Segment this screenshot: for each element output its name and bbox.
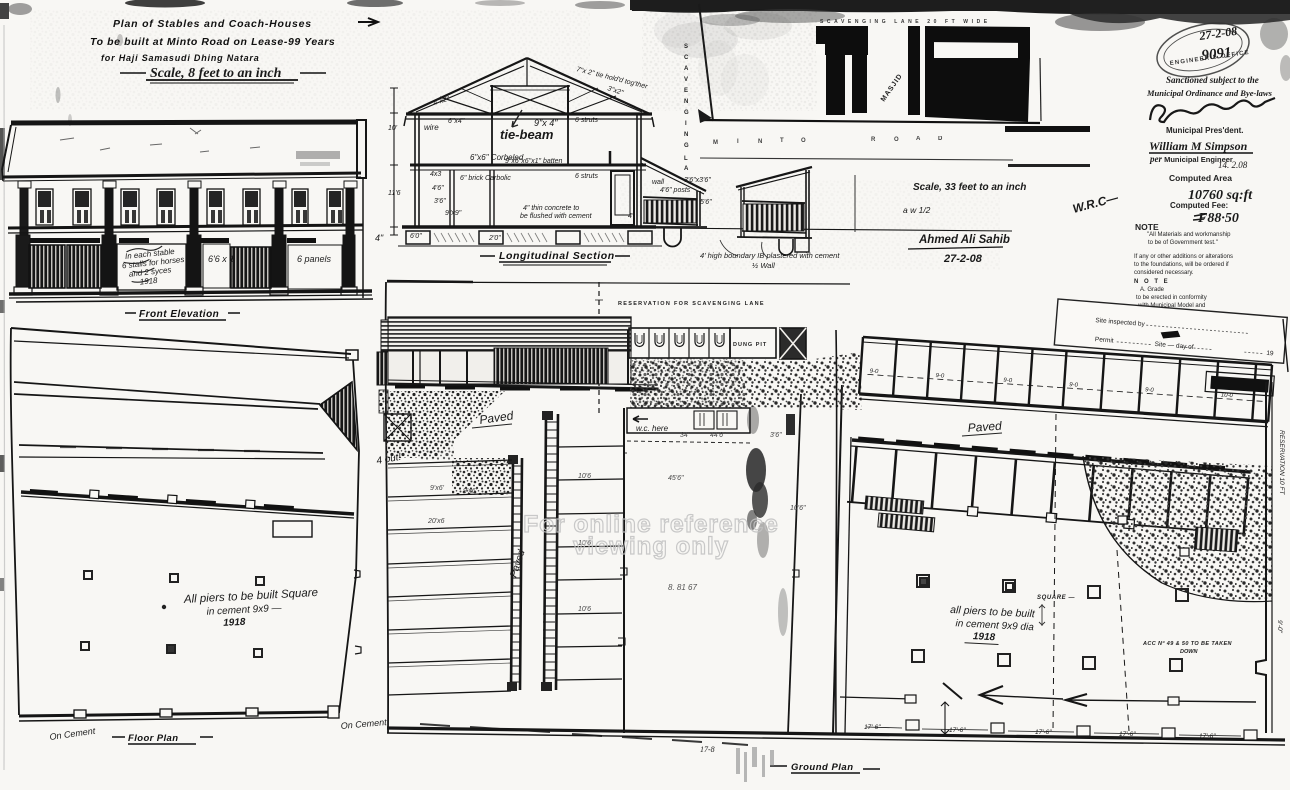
svg-text:3'6": 3'6": [434, 198, 446, 205]
svg-text:D: D: [938, 136, 943, 142]
svg-text:Front Elevation: Front Elevation: [139, 309, 219, 320]
svg-text:Computed Area: Computed Area: [1169, 173, 1232, 183]
svg-text:M: M: [713, 140, 718, 146]
svg-text:Municipal Ordinance and Bye-la: Municipal Ordinance and Bye-laws: [1146, 88, 1273, 98]
svg-text:viewing only: viewing only: [573, 533, 729, 560]
svg-text:4" thin concrete to: 4" thin concrete to: [523, 205, 579, 212]
svg-text:Computed Fee:: Computed Fee:: [1170, 201, 1228, 210]
svg-text:O: O: [894, 137, 899, 143]
svg-text:Plan of Stables and Coach-Hous: Plan of Stables and Coach-Houses: [113, 18, 312, 30]
svg-text:19: 19: [1266, 350, 1274, 358]
svg-text:To be built at Minto Road on L: To be built at Minto Road on Lease-99 Ye…: [90, 36, 335, 48]
svg-text:Ahmed Ali Sahib: Ahmed Ali Sahib: [918, 234, 1010, 246]
svg-text:A: A: [684, 66, 689, 72]
svg-text:A: A: [916, 136, 921, 142]
svg-text:to be of Government test.": to be of Government test.": [1148, 240, 1218, 246]
svg-text:DUNG PIT: DUNG PIT: [733, 342, 767, 348]
svg-text:a w 1/2: a w 1/2: [903, 205, 931, 215]
svg-text:for Haji Samasudi Dhing Natara: for Haji Samasudi Dhing Natara: [101, 53, 260, 63]
svg-text:Municipal Pres'dent.: Municipal Pres'dent.: [1166, 126, 1243, 135]
svg-text:44'6": 44'6": [710, 432, 726, 439]
svg-text:considered necessary.: considered necessary.: [1134, 270, 1194, 276]
svg-text:V: V: [684, 77, 688, 83]
svg-text:6"x4": 6"x4": [448, 118, 465, 125]
svg-text:45'6": 45'6": [668, 475, 684, 482]
svg-text:10'6: 10'6: [578, 606, 591, 613]
svg-text:wall: wall: [652, 179, 665, 186]
svg-text:10': 10': [388, 125, 398, 132]
svg-text:Ground Plan: Ground Plan: [791, 762, 854, 773]
svg-text:10'6": 10'6": [790, 505, 806, 512]
svg-text:9-0: 9-0: [1003, 378, 1013, 385]
svg-text:9"x9": 9"x9": [445, 210, 462, 217]
svg-text:9-0: 9-0: [1069, 382, 1079, 389]
svg-text:N: N: [684, 99, 688, 105]
svg-text:17'-6": 17'-6": [1035, 729, 1052, 736]
svg-text:2'0": 2'0": [488, 235, 501, 242]
svg-text:27-2-08: 27-2-08: [943, 253, 983, 265]
svg-text:Longitudinal Section: Longitudinal Section: [499, 250, 615, 262]
svg-text:10-0: 10-0: [1221, 392, 1234, 399]
svg-text:11'6: 11'6: [388, 190, 401, 197]
svg-text:4'6" posts: 4'6" posts: [660, 187, 691, 194]
svg-text:A: A: [684, 166, 689, 172]
svg-text:N: N: [758, 139, 762, 145]
svg-text:20'x6: 20'x6: [427, 518, 445, 525]
svg-text:Scale, 33 feet to an inch: Scale, 33 feet to an inch: [913, 182, 1026, 193]
svg-text:to be erected in conformity: to be erected in conformity: [1136, 295, 1207, 301]
svg-text:6'6 x 1: 6'6 x 1: [208, 254, 234, 264]
svg-text:9-0: 9-0: [935, 373, 945, 380]
svg-text:R: R: [871, 137, 876, 143]
svg-text:Sanctioned subject to the: Sanctioned subject to the: [1166, 75, 1259, 85]
svg-text:½ Wall: ½ Wall: [752, 261, 775, 270]
svg-text:17-8: 17-8: [700, 745, 715, 754]
svg-text:RESERVATION FOR SCAVENGING LAN: RESERVATION FOR SCAVENGING LANE: [618, 301, 765, 307]
svg-text:4": 4": [628, 213, 635, 220]
svg-text:4": 4": [375, 233, 384, 243]
svg-text:4' high boundary IB plastered: 4' high boundary IB plastered with cemen…: [700, 251, 840, 260]
svg-text:C: C: [684, 55, 689, 61]
svg-text:DOWN: DOWN: [1180, 649, 1198, 655]
svg-text:17'-6": 17'-6": [1199, 733, 1216, 740]
svg-text:E: E: [684, 88, 688, 94]
svg-text:17'-6": 17'-6": [949, 727, 966, 734]
svg-text:9-0: 9-0: [869, 369, 879, 376]
svg-text:G: G: [684, 110, 689, 116]
svg-text:9091: 9091: [1201, 45, 1233, 64]
svg-text:6 struts: 6 struts: [575, 173, 598, 180]
svg-text:wire: wire: [424, 123, 439, 132]
svg-text:"All Materials and workmanship: "All Materials and workmanship: [1147, 232, 1231, 238]
svg-text:6 panels: 6 panels: [297, 254, 332, 264]
svg-text:4x3: 4x3: [430, 171, 441, 178]
svg-text:10'6: 10'6: [578, 473, 591, 480]
svg-text:S: S: [684, 44, 688, 50]
svg-text:If any or other additions or a: If any or other additions or alterations: [1134, 254, 1233, 260]
svg-text:6 struts: 6 struts: [575, 117, 598, 124]
svg-text:8. 81 67: 8. 81 67: [668, 583, 697, 592]
svg-text:9'-0": 9'-0": [1276, 620, 1283, 634]
svg-text:3'6": 3'6": [770, 432, 782, 439]
svg-text:RESERVATION 10 FT: RESERVATION 10 FT: [1278, 430, 1285, 495]
svg-text:Floor Plan: Floor Plan: [128, 733, 178, 744]
svg-text:T: T: [780, 138, 784, 144]
svg-text:6" brick Carbolic: 6" brick Carbolic: [460, 175, 511, 182]
svg-text:1918: 1918: [223, 617, 246, 629]
svg-text:N: N: [684, 132, 688, 138]
svg-text:14. 2.08: 14. 2.08: [1218, 160, 1248, 170]
svg-text:L: L: [684, 156, 688, 162]
svg-text:Paved: Paved: [967, 419, 1002, 435]
svg-text:NOTE: NOTE: [1135, 222, 1159, 232]
svg-text:Scale, 8 feet to an inch: Scale, 8 feet to an inch: [150, 66, 282, 81]
svg-text:SCAVENGING LANE 20 FT WIDE: SCAVENGING LANE 20 FT WIDE: [820, 19, 991, 25]
svg-text:3'6"x3'6": 3'6"x3'6": [684, 177, 711, 184]
svg-text:to the foundations, will be or: to the foundations, will be ordered if: [1134, 262, 1229, 268]
svg-text:17'-6": 17'-6": [1119, 731, 1136, 738]
svg-text:9"x 4": 9"x 4": [534, 118, 558, 128]
svg-text:G: G: [684, 143, 689, 149]
svg-text:w.c. here: w.c. here: [636, 424, 669, 433]
svg-text:ACC Nº 49 & 50 TO BE TAKEN: ACC Nº 49 & 50 TO BE TAKEN: [1142, 640, 1233, 647]
svg-text:1918: 1918: [139, 276, 158, 287]
svg-text:34': 34': [680, 432, 690, 439]
svg-text:9'x6': 9'x6': [430, 485, 445, 492]
svg-text:9'x6': 9'x6': [463, 488, 478, 495]
svg-text:1918: 1918: [973, 631, 996, 643]
svg-text:be flushed with cement: be flushed with cement: [520, 213, 593, 220]
svg-text:William M Simpson: William M Simpson: [1149, 139, 1248, 153]
svg-text:5'6": 5'6": [700, 199, 712, 206]
svg-text:O: O: [801, 138, 806, 144]
svg-text:A. Grade: A. Grade: [1140, 287, 1165, 293]
svg-text:N O T E: N O T E: [1134, 279, 1170, 285]
svg-text:SQUARE —: SQUARE —: [1037, 595, 1076, 601]
svg-text:9-0: 9-0: [1145, 387, 1155, 394]
svg-text:6'0": 6'0": [410, 233, 422, 240]
svg-text:4'6": 4'6": [432, 185, 444, 192]
svg-text:9"x6"x6"x1" batten: 9"x6"x6"x1" batten: [505, 158, 563, 165]
svg-text:tie-beam: tie-beam: [500, 127, 554, 142]
